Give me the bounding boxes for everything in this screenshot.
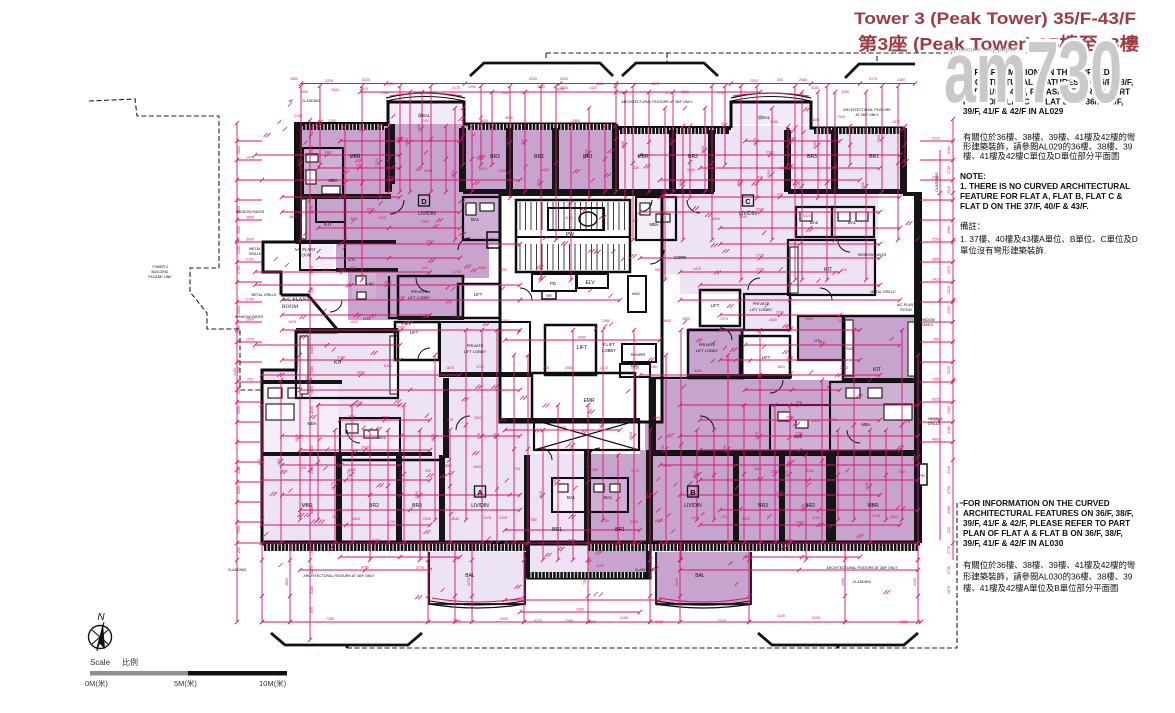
svg-text:2650: 2650	[290, 77, 298, 81]
svg-text:6929: 6929	[629, 432, 633, 440]
svg-text:METAL GRILLE: METAL GRILLE	[870, 290, 896, 294]
svg-text:1475: 1475	[483, 516, 491, 520]
svg-text:METAL: METAL	[249, 247, 261, 251]
svg-text:2830: 2830	[360, 87, 368, 91]
svg-text:3180: 3180	[348, 468, 356, 472]
svg-text:5325: 5325	[367, 208, 375, 212]
svg-text:250: 250	[933, 338, 939, 342]
svg-text:3100: 3100	[596, 564, 604, 568]
svg-text:2200: 2200	[932, 238, 940, 242]
svg-text:SVC: SVC	[846, 347, 854, 351]
svg-text:2000: 2000	[331, 88, 339, 92]
svg-text:10M(米): 10M(米)	[259, 678, 287, 688]
svg-text:6600: 6600	[352, 517, 360, 521]
svg-text:3745: 3745	[872, 514, 880, 518]
svg-text:1100: 1100	[397, 296, 405, 300]
svg-text:2775: 2775	[756, 254, 764, 258]
svg-text:FLAT D ON THE 37/F, 40/F & 43/: FLAT D ON THE 37/F, 40/F & 43/F.	[960, 202, 1089, 211]
svg-text:CLADDING: CLADDING	[935, 172, 939, 192]
svg-text:MBR: MBR	[349, 154, 361, 160]
svg-text:200: 200	[632, 219, 638, 223]
svg-text:2650: 2650	[237, 226, 241, 234]
svg-text:200: 200	[838, 319, 844, 323]
svg-text:220: 220	[757, 176, 763, 180]
svg-text:2175: 2175	[756, 268, 764, 272]
svg-text:1280: 1280	[900, 620, 908, 624]
svg-text:6929: 6929	[310, 146, 314, 154]
svg-text:1420: 1420	[721, 122, 725, 130]
svg-text:2650: 2650	[785, 470, 789, 478]
svg-text:6929: 6929	[655, 519, 663, 523]
svg-text:KIT: KIT	[873, 367, 881, 373]
svg-text:4800: 4800	[932, 438, 940, 442]
svg-text:2000: 2000	[500, 617, 508, 621]
svg-text:3420: 3420	[541, 168, 549, 172]
svg-text:2200: 2200	[417, 124, 421, 132]
svg-text:A/C PLANT: A/C PLANT	[294, 247, 316, 252]
svg-text:PRIVATE: PRIVATE	[467, 343, 484, 348]
svg-text:3730: 3730	[558, 426, 566, 430]
svg-text:2830: 2830	[769, 318, 777, 322]
svg-text:3745: 3745	[630, 520, 638, 524]
svg-text:WINDOW EAVES: WINDOW EAVES	[858, 253, 887, 257]
svg-text:3390: 3390	[766, 151, 774, 155]
svg-text:3420: 3420	[742, 517, 750, 521]
svg-text:3500: 3500	[771, 470, 779, 474]
svg-text:3420: 3420	[505, 138, 509, 146]
svg-text:LIFT: LIFT	[711, 303, 720, 308]
svg-text:1280: 1280	[553, 478, 557, 486]
svg-text:7350: 7350	[310, 366, 314, 374]
svg-text:my choice . my paper: my choice . my paper	[947, 47, 1016, 54]
svg-text:3500: 3500	[384, 281, 392, 285]
svg-text:ROOM: ROOM	[900, 308, 911, 312]
svg-text:3090: 3090	[246, 238, 254, 242]
svg-text:EMR: EMR	[583, 398, 595, 404]
svg-text:3730: 3730	[661, 445, 665, 453]
svg-text:PLAN OF FLAT A & FLAT B ON 36/: PLAN OF FLAT A & FLAT B ON 36/F, 38/F,	[963, 529, 1123, 538]
svg-text:220: 220	[633, 166, 639, 170]
svg-text:6400: 6400	[947, 146, 951, 154]
svg-text:3730: 3730	[947, 166, 951, 174]
svg-text:LOBBY: LOBBY	[602, 348, 616, 353]
svg-text:2850: 2850	[396, 137, 404, 141]
svg-text:725: 725	[341, 180, 345, 186]
svg-text:1290: 1290	[468, 85, 476, 89]
svg-text:6400: 6400	[645, 491, 649, 499]
svg-text:3500: 3500	[349, 266, 357, 270]
svg-text:樓、41樓及42樓C單位及D單位部分平面圖: 樓、41樓及42樓C單位及D單位部分平面圖	[963, 151, 1119, 161]
svg-text:3420: 3420	[932, 278, 940, 282]
svg-text:2625: 2625	[663, 464, 671, 468]
svg-text:2650: 2650	[246, 216, 254, 220]
svg-text:1875: 1875	[431, 434, 435, 442]
svg-text:2225: 2225	[325, 79, 333, 83]
svg-text:AT 38/F ONLY: AT 38/F ONLY	[856, 113, 880, 117]
svg-text:BR3: BR3	[412, 503, 422, 509]
svg-text:MBA: MBA	[649, 222, 658, 227]
svg-text:AF: AF	[289, 99, 294, 103]
svg-text:3640: 3640	[890, 515, 898, 519]
svg-text:2980: 2980	[602, 319, 610, 323]
svg-text:WMC: WMC	[632, 292, 641, 296]
svg-text:3020: 3020	[693, 471, 697, 479]
svg-text:BAL: BAL	[465, 573, 475, 579]
svg-text:ELV: ELV	[585, 280, 595, 286]
svg-text:3500: 3500	[237, 406, 241, 414]
svg-text:PRIVATE: PRIVATE	[699, 342, 716, 347]
svg-text:4800: 4800	[621, 141, 625, 149]
svg-text:ARCHITECTURAL FEATURES ON 36/F: ARCHITECTURAL FEATURES ON 36/F, 38/F,	[963, 509, 1133, 518]
svg-text:LIV/DIN: LIV/DIN	[739, 211, 757, 217]
svg-text:2775: 2775	[416, 566, 424, 570]
svg-text:3800: 3800	[297, 159, 301, 167]
svg-text:METAL GRILLE: METAL GRILLE	[251, 293, 277, 297]
svg-text:3420: 3420	[322, 268, 330, 272]
svg-text:PD: PD	[919, 474, 925, 478]
svg-text:1975: 1975	[246, 338, 254, 342]
svg-text:555: 555	[655, 268, 661, 272]
svg-text:3100: 3100	[421, 119, 429, 123]
svg-text:2700: 2700	[305, 376, 309, 384]
svg-text:1280: 1280	[453, 619, 461, 623]
svg-text:2930: 2930	[840, 366, 848, 370]
svg-text:ROOM: ROOM	[299, 253, 312, 258]
svg-text:UTL: UTL	[348, 257, 356, 262]
svg-text:FEATURE FOR FLAT A, FLAT B, FL: FEATURE FOR FLAT A, FLAT B, FLAT C &	[960, 192, 1122, 201]
svg-text:250: 250	[777, 78, 783, 82]
svg-text:2650: 2650	[501, 91, 509, 95]
svg-text:5M(米): 5M(米)	[174, 678, 197, 688]
svg-text:LAV: LAV	[366, 281, 374, 286]
svg-text:2225: 2225	[675, 578, 679, 586]
svg-text:LIFT LOBBY: LIFT LOBBY	[750, 307, 773, 312]
svg-text:3180: 3180	[337, 356, 345, 360]
svg-text:MBA: MBA	[328, 178, 337, 183]
svg-text:2100: 2100	[246, 258, 254, 262]
svg-text:3800: 3800	[285, 578, 289, 586]
svg-text:5325: 5325	[567, 199, 571, 207]
svg-text:6929: 6929	[785, 539, 793, 543]
svg-text:2410: 2410	[812, 419, 820, 423]
svg-text:250: 250	[332, 515, 338, 519]
svg-text:7900: 7900	[237, 526, 241, 534]
svg-text:5325: 5325	[534, 619, 542, 623]
svg-text:200: 200	[425, 469, 431, 473]
svg-text:NOTE:: NOTE:	[960, 171, 986, 181]
svg-text:LIFT: LIFT	[474, 292, 483, 297]
svg-text:1420: 1420	[237, 466, 241, 474]
svg-text:@BAL: @BAL	[758, 115, 771, 120]
svg-text:555: 555	[796, 401, 802, 405]
svg-text:200: 200	[777, 193, 783, 197]
svg-text:A/C PLANT: A/C PLANT	[897, 303, 916, 307]
svg-text:UTL: UTL	[363, 316, 371, 321]
svg-text:2775: 2775	[331, 482, 335, 490]
svg-text:3390: 3390	[588, 620, 596, 624]
svg-text:LIFT: LIFT	[410, 330, 419, 335]
svg-text:4700: 4700	[361, 566, 369, 570]
svg-text:BR3: BR3	[758, 503, 768, 509]
svg-text:6600: 6600	[596, 82, 604, 86]
svg-text:2100: 2100	[237, 246, 241, 254]
svg-text:MBA: MBA	[861, 422, 870, 427]
svg-text:1290: 1290	[310, 126, 314, 134]
svg-text:2410: 2410	[378, 216, 386, 220]
svg-text:1975: 1975	[288, 320, 296, 324]
svg-text:LIV/DIN: LIV/DIN	[418, 211, 436, 217]
svg-text:3390: 3390	[861, 182, 865, 190]
svg-text:6600: 6600	[707, 159, 711, 167]
svg-text:200: 200	[277, 459, 281, 465]
svg-text:A: A	[477, 488, 483, 497]
svg-text:2830: 2830	[560, 77, 568, 81]
svg-text:2700: 2700	[246, 298, 254, 302]
svg-text:6400: 6400	[478, 266, 486, 270]
svg-text:LIFT LOBBY: LIFT LOBBY	[696, 348, 719, 353]
svg-text:PRIVATE: PRIVATE	[753, 301, 770, 306]
svg-text:3640: 3640	[539, 491, 543, 499]
svg-text:250: 250	[521, 139, 525, 145]
svg-text:7350: 7350	[932, 378, 940, 382]
svg-text:3020: 3020	[474, 416, 482, 420]
svg-text:2980: 2980	[805, 317, 813, 321]
svg-text:1975: 1975	[467, 578, 471, 586]
svg-text:BA1: BA1	[848, 220, 857, 225]
svg-text:2700: 2700	[499, 268, 507, 272]
svg-text:ARCHITECTURAL FEATURE AT 38/F: ARCHITECTURAL FEATURE AT 38/F ONLY	[621, 100, 693, 104]
svg-text:3800: 3800	[289, 215, 297, 219]
svg-text:250: 250	[356, 164, 362, 168]
svg-text:2410: 2410	[947, 466, 951, 474]
svg-text:2225: 2225	[947, 286, 951, 294]
svg-text:備註：: 備註：	[960, 221, 985, 231]
svg-text:3745: 3745	[947, 566, 951, 574]
svg-text:3020: 3020	[947, 186, 951, 194]
svg-text:4800: 4800	[338, 268, 346, 272]
svg-text:4700: 4700	[387, 520, 395, 524]
svg-text:1875: 1875	[892, 120, 900, 124]
svg-text:2775: 2775	[829, 418, 837, 422]
svg-text:1475: 1475	[246, 156, 254, 160]
svg-text:LIFT LOBBY: LIFT LOBBY	[464, 349, 487, 354]
svg-text:4800: 4800	[560, 86, 568, 90]
svg-text:725: 725	[310, 287, 314, 293]
svg-text:1600: 1600	[723, 445, 727, 453]
svg-text:2175: 2175	[310, 566, 314, 574]
svg-text:3020: 3020	[681, 90, 689, 94]
svg-text:BA2: BA2	[378, 435, 387, 440]
svg-text:單位沒有彎形建築裝飾.: 單位沒有彎形建築裝飾.	[960, 246, 1046, 256]
svg-text:2080: 2080	[348, 415, 356, 419]
svg-text:N: N	[97, 612, 105, 623]
svg-text:1600: 1600	[576, 608, 584, 612]
svg-text:2830: 2830	[426, 240, 434, 244]
svg-text:8150: 8150	[590, 468, 598, 472]
svg-text:2000: 2000	[237, 306, 241, 314]
svg-text:2930: 2930	[423, 517, 431, 521]
svg-text:2930: 2930	[756, 208, 764, 212]
svg-text:675: 675	[447, 418, 453, 422]
svg-text:比例: 比例	[122, 657, 138, 667]
svg-text:2160: 2160	[620, 616, 628, 620]
svg-text:2850: 2850	[451, 170, 455, 178]
svg-text:BR3: BR3	[490, 154, 500, 160]
svg-text:FACADE LINE: FACADE LINE	[148, 275, 172, 279]
svg-text:METAL: METAL	[928, 417, 940, 421]
svg-text:GRILLE: GRILLE	[249, 252, 262, 256]
svg-text:A/C PLANT: A/C PLANT	[282, 297, 310, 303]
svg-text:LIFT: LIFT	[577, 345, 587, 351]
svg-text:PD: PD	[489, 238, 495, 242]
svg-text:LIV/DIN: LIV/DIN	[684, 503, 702, 509]
svg-text:CLADDING: CLADDING	[853, 580, 872, 584]
svg-text:3090: 3090	[300, 90, 308, 94]
svg-text:1475: 1475	[693, 267, 701, 271]
svg-text:2175: 2175	[869, 77, 877, 81]
svg-text:3390: 3390	[841, 90, 849, 94]
svg-text:BUILDING: BUILDING	[152, 270, 169, 274]
svg-text:FOR INFORMATION ON THE CURVED: FOR INFORMATION ON THE CURVED	[963, 499, 1110, 508]
svg-text:3800: 3800	[502, 319, 510, 323]
svg-text:2160: 2160	[310, 586, 314, 594]
svg-text:1975: 1975	[315, 122, 319, 130]
svg-text:7350: 7350	[387, 176, 395, 180]
svg-text:1. 37樓、40樓及43樓A單位、B單位、C單位及D: 1. 37樓、40樓及43樓A單位、B單位、C單位及D	[960, 234, 1138, 244]
svg-text:有關位於36樓、38樓、39樓、41樓及42樓的彎: 有關位於36樓、38樓、39樓、41樓及42樓的彎	[963, 132, 1135, 142]
svg-text:6400: 6400	[578, 336, 586, 340]
svg-text:3180: 3180	[947, 426, 951, 434]
svg-text:2980: 2980	[310, 466, 314, 474]
svg-text:1975: 1975	[720, 317, 728, 321]
svg-text:2000: 2000	[405, 138, 409, 146]
svg-text:D: D	[421, 197, 427, 206]
svg-text:1600: 1600	[687, 168, 695, 172]
svg-text:F.LIFT: F.LIFT	[603, 342, 615, 347]
svg-text:2160: 2160	[453, 315, 461, 319]
svg-text:3390: 3390	[947, 506, 951, 514]
svg-text:BR2: BR2	[534, 154, 544, 160]
svg-text:3180: 3180	[701, 146, 705, 154]
svg-text:ARCHITECTURAL FEATURE: ARCHITECTURAL FEATURE	[843, 108, 891, 112]
svg-text:EAD: EAD	[631, 363, 639, 368]
svg-text:BR1: BR1	[552, 527, 562, 533]
svg-text:3090: 3090	[505, 116, 513, 120]
svg-text:0M(米): 0M(米)	[85, 678, 108, 688]
svg-text:3420: 3420	[324, 151, 332, 155]
svg-text:BA1: BA1	[567, 495, 576, 500]
svg-text:MBA: MBA	[307, 421, 316, 426]
svg-text:675: 675	[904, 420, 910, 424]
svg-text:4700: 4700	[812, 516, 820, 520]
svg-text:555: 555	[899, 470, 905, 474]
svg-text:6929: 6929	[479, 167, 487, 171]
svg-text:2850: 2850	[537, 85, 545, 89]
svg-text:725: 725	[583, 579, 587, 585]
svg-text:CORR: CORR	[674, 255, 686, 260]
svg-text:1875: 1875	[446, 366, 454, 370]
svg-text:1100: 1100	[777, 614, 785, 618]
svg-text:CLADDING: CLADDING	[228, 568, 247, 572]
svg-text:3100: 3100	[788, 137, 796, 141]
svg-text:1290: 1290	[652, 416, 660, 420]
svg-text:7350: 7350	[326, 617, 334, 621]
svg-text:2000: 2000	[841, 578, 845, 586]
svg-text:2410: 2410	[361, 446, 369, 450]
svg-text:2200: 2200	[913, 578, 917, 586]
svg-text:BA1: BA1	[604, 495, 613, 500]
svg-text:4700: 4700	[947, 486, 951, 494]
svg-text:8150: 8150	[806, 469, 814, 473]
svg-text:BA2: BA2	[794, 434, 803, 439]
svg-text:3100: 3100	[812, 616, 820, 620]
svg-text:675: 675	[787, 356, 793, 360]
svg-text:MBR: MBR	[867, 503, 879, 509]
svg-text:BA2: BA2	[810, 220, 819, 225]
svg-text:WINDOW: WINDOW	[919, 318, 935, 322]
svg-text:WINDOW EAVES: WINDOW EAVES	[236, 210, 265, 214]
svg-text:2200: 2200	[529, 77, 537, 81]
svg-text:2080: 2080	[565, 366, 573, 370]
svg-text:2080: 2080	[397, 326, 405, 330]
svg-text:250: 250	[543, 366, 549, 370]
svg-text:WINDOW EAVES: WINDOW EAVES	[235, 315, 264, 319]
svg-text:MBR: MBR	[637, 154, 649, 160]
svg-text:3500: 3500	[572, 119, 580, 123]
svg-text:RSMRR: RSMRR	[631, 352, 646, 357]
svg-text:5325: 5325	[780, 166, 788, 170]
svg-text:39/F, 41/F & 42/F, PLEASE REFE: 39/F, 41/F & 42/F, PLEASE REFER TO PART	[963, 519, 1130, 528]
svg-text:KIT: KIT	[324, 222, 332, 228]
svg-text:6600: 6600	[811, 118, 819, 122]
svg-text:2980: 2980	[381, 416, 389, 420]
svg-text:2625: 2625	[599, 421, 603, 429]
svg-text:4800: 4800	[777, 365, 785, 369]
svg-text:2100: 2100	[865, 482, 869, 490]
svg-text:1280: 1280	[649, 365, 657, 369]
svg-text:2200: 2200	[947, 306, 951, 314]
svg-text:2080: 2080	[799, 78, 807, 82]
svg-text:3090: 3090	[947, 226, 951, 234]
svg-text:2225: 2225	[375, 158, 379, 166]
svg-text:675: 675	[665, 91, 671, 95]
svg-text:1. THERE IS NO CURVED ARCHITEC: 1. THERE IS NO CURVED ARCHITECTURAL	[960, 182, 1130, 191]
svg-text:3090: 3090	[694, 369, 702, 373]
svg-text:PW: PW	[566, 232, 574, 238]
svg-text:2160: 2160	[897, 78, 905, 82]
svg-text:2100: 2100	[691, 516, 699, 520]
svg-text:8150: 8150	[372, 539, 380, 543]
svg-text:B: B	[690, 488, 696, 497]
svg-text:MBR: MBR	[301, 503, 313, 509]
svg-text:CLADDING: CLADDING	[302, 99, 321, 103]
svg-text:1875: 1875	[651, 82, 659, 86]
svg-text:2625: 2625	[237, 146, 241, 154]
svg-text:2100: 2100	[294, 114, 302, 118]
svg-text:3390: 3390	[424, 169, 432, 173]
svg-text:1475: 1475	[310, 206, 314, 214]
svg-text:BR2: BR2	[805, 503, 815, 509]
svg-text:2410: 2410	[600, 366, 608, 370]
svg-text:CLADDING: CLADDING	[635, 568, 654, 572]
svg-text:1100: 1100	[669, 138, 673, 146]
svg-text:7900: 7900	[421, 220, 429, 224]
svg-text:2225: 2225	[932, 137, 940, 141]
svg-text:LIFT LOBBY: LIFT LOBBY	[408, 295, 431, 300]
svg-text:220: 220	[947, 527, 951, 533]
svg-text:220: 220	[422, 266, 428, 270]
svg-text:1875: 1875	[947, 586, 951, 594]
